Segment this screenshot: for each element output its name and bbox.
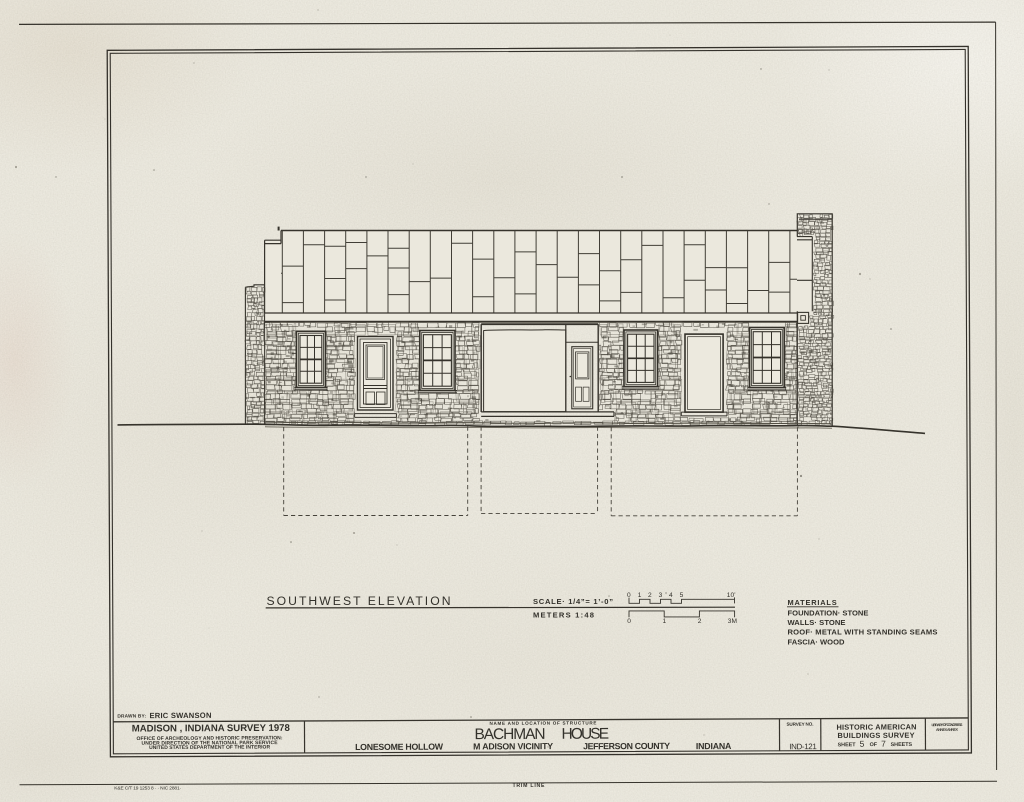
svg-text:LONESOME HOLLOW: LONESOME HOLLOW bbox=[355, 742, 444, 752]
svg-text:IND-121: IND-121 bbox=[789, 742, 817, 751]
svg-text:TRIM LINE: TRIM LINE bbox=[513, 783, 546, 789]
svg-text:1: 1 bbox=[663, 618, 667, 625]
svg-text:WALLS· STONE: WALLS· STONE bbox=[788, 618, 846, 627]
svg-text:ROOF· METAL WITH STANDING SEAM: ROOF· METAL WITH STANDING SEAMS bbox=[788, 628, 938, 637]
svg-text:OF: OF bbox=[870, 742, 878, 748]
svg-text:2: 2 bbox=[698, 618, 702, 625]
svg-text:SCALE· 1/4”= 1’-0”: SCALE· 1/4”= 1’-0” bbox=[533, 597, 613, 606]
svg-text:K&E C/T 19 1253 8 · · NIC 2881: K&E C/T 19 1253 8 · · NIC 2881· bbox=[114, 786, 181, 792]
svg-text:SURVEY NO.: SURVEY NO. bbox=[786, 722, 813, 727]
svg-text:ERIC SWANSON: ERIC SWANSON bbox=[149, 711, 211, 720]
svg-text:10’: 10’ bbox=[727, 592, 736, 599]
svg-text:BUILDINGS SURVEY: BUILDINGS SURVEY bbox=[838, 731, 915, 740]
svg-text:JEFFERSON COUNTY: JEFFERSON COUNTY bbox=[583, 741, 670, 751]
svg-text:M ADISON VICINITY: M ADISON VICINITY bbox=[473, 741, 553, 751]
svg-text:FOUNDATION· STONE: FOUNDATION· STONE bbox=[788, 608, 869, 617]
svg-text:7: 7 bbox=[881, 739, 886, 749]
svg-text:5: 5 bbox=[860, 739, 865, 749]
svg-text:2: 2 bbox=[648, 592, 652, 599]
svg-text:MATERIALS: MATERIALS bbox=[788, 598, 838, 607]
svg-text:4: 4 bbox=[669, 592, 673, 599]
svg-text:ANNEX ANNEX: ANNEX ANNEX bbox=[936, 728, 959, 732]
svg-text:0: 0 bbox=[627, 592, 631, 599]
svg-text:HOUSE: HOUSE bbox=[561, 726, 609, 743]
svg-text:MADISON , INDIANA SURVEY 197: MADISON , INDIANA SURVEY 1978 bbox=[132, 723, 291, 735]
svg-text:METERS 1:48: METERS 1:48 bbox=[533, 611, 594, 620]
svg-text:SOUTHWEST ELEVATION: SOUTHWEST ELEVATION bbox=[267, 594, 453, 608]
svg-text:INDIANA: INDIANA bbox=[696, 741, 732, 751]
svg-text:5: 5 bbox=[680, 592, 684, 599]
svg-text:DRAWN BY:: DRAWN BY: bbox=[117, 713, 146, 719]
svg-text:FASCIA· WOOD: FASCIA· WOOD bbox=[788, 638, 846, 647]
svg-text:3M: 3M bbox=[728, 618, 737, 625]
svg-text:SHEETS: SHEETS bbox=[891, 742, 913, 748]
svg-text:3: 3 bbox=[659, 592, 663, 599]
svg-text:0: 0 bbox=[627, 618, 631, 625]
svg-text:LIBRARY OF CONGRESS: LIBRARY OF CONGRESS bbox=[931, 723, 963, 727]
svg-text:1: 1 bbox=[638, 592, 642, 599]
svg-text:SHEET: SHEET bbox=[838, 742, 857, 748]
svg-text:UNITED STATES DEPARTMENT OF TH: UNITED STATES DEPARTMENT OF THE INTERIOR bbox=[149, 744, 270, 751]
